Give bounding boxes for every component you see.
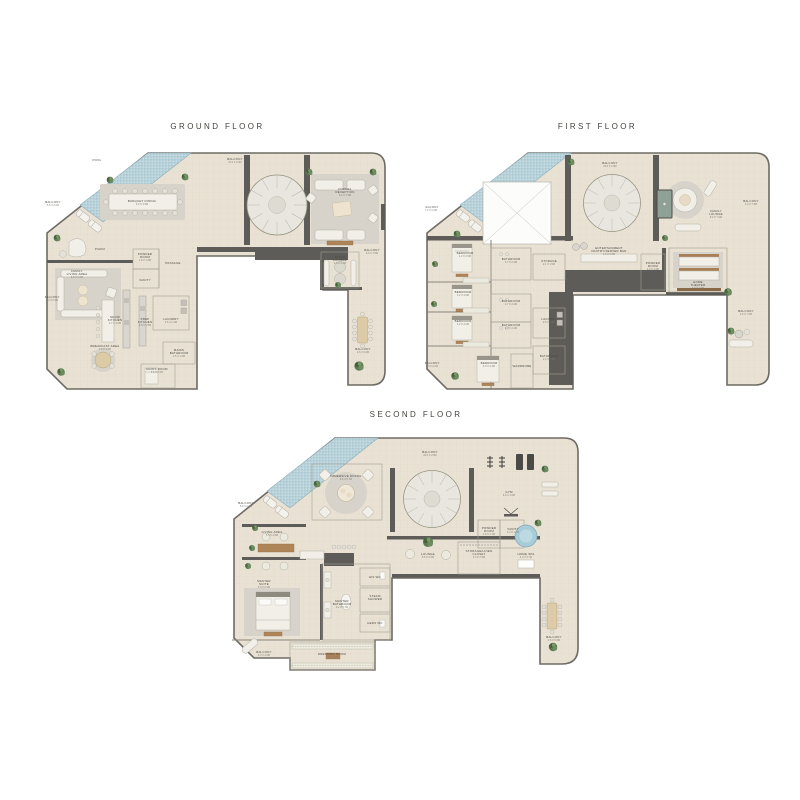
armchair-round	[280, 562, 288, 570]
balcony-bench	[542, 491, 558, 496]
bedroom-2	[452, 285, 472, 312]
plant	[314, 481, 321, 488]
ice-bucket	[573, 244, 580, 251]
console-table	[327, 241, 353, 245]
ground-floor-svg: POOLBALCONY21.0 X 2.0MBALCONY5.5 X 2.0MB…	[45, 150, 390, 390]
sofa	[315, 230, 343, 240]
treadmill	[516, 454, 523, 470]
corridor-wall	[565, 270, 662, 292]
plant	[54, 235, 61, 242]
room-label: VANITY	[139, 278, 151, 282]
wall	[320, 287, 362, 290]
master-bed	[256, 592, 290, 630]
room-label: FAMILYLOUNGE8.2 X 7.0M	[709, 209, 723, 219]
room-label: BALCONY2.6 X 6.0M	[546, 635, 562, 642]
stair-wall	[469, 468, 474, 532]
plant	[432, 261, 438, 267]
room-label: BALCONY6.0 X 2.0M	[425, 361, 440, 368]
plant	[57, 368, 65, 376]
corridor-wall	[549, 292, 573, 385]
wall	[662, 248, 666, 292]
plant	[252, 525, 258, 531]
plant	[568, 159, 575, 166]
sofa-back	[679, 268, 719, 271]
plant	[249, 545, 255, 551]
plant	[423, 537, 433, 547]
wall	[47, 260, 133, 263]
room-label: BALCONY6.0 X 2.0M	[256, 650, 272, 657]
ground-floor-title: GROUND FLOOR	[45, 122, 390, 131]
wall	[242, 557, 306, 560]
plant	[245, 563, 251, 569]
page-root: { "colors": { "floor": "#e9e2d4", "wall"…	[0, 0, 800, 800]
sofa-back	[679, 254, 719, 257]
spiral-staircase	[584, 175, 641, 232]
round-dining-table	[338, 485, 355, 502]
spa-water	[520, 530, 533, 543]
washer	[181, 300, 187, 306]
plant	[549, 643, 557, 651]
plant	[535, 520, 542, 527]
plant	[354, 361, 363, 370]
bar-counter	[300, 551, 324, 559]
ground-floor-plan: POOLBALCONY21.0 X 2.0MBALCONY5.5 X 2.0MB…	[45, 150, 390, 390]
plant	[451, 372, 459, 380]
curved-sofa	[351, 260, 356, 286]
first-floor-svg: BALCONY20.0 X 2.0MBALCONY7.2 X 2.0MFAMIL…	[425, 150, 775, 390]
room-label: BALCONY2.0 X 5.5M	[45, 295, 60, 302]
bed-bench	[264, 632, 282, 636]
second-floor-title: SECOND FLOOR	[240, 410, 592, 419]
bedroom-1	[452, 244, 472, 277]
room-label: BALCONY20.0 X 2.0M	[422, 450, 438, 457]
room-label: LAUNDRY2.6 X 2.2M	[541, 317, 557, 324]
armchair-round	[280, 533, 288, 541]
room-label: STORAGE2.1 X 1.5M	[541, 259, 557, 266]
closet	[463, 308, 489, 313]
closet	[463, 278, 489, 283]
lounge-chair	[442, 551, 451, 560]
room-label: HIS WC	[369, 575, 381, 579]
second-floor-svg: BALCONY20.0 X 2.0MIMMERSIVE DINING6.0 X …	[232, 436, 584, 674]
wall	[320, 564, 323, 640]
room-label: BALCONY3.0 X 7.5M	[743, 199, 759, 206]
plant	[182, 174, 189, 181]
second-floor-plan: BALCONY20.0 X 2.0MIMMERSIVE DINING6.0 X …	[232, 436, 584, 674]
closet	[463, 342, 489, 347]
treadmill	[527, 454, 534, 470]
armchair-round	[262, 562, 270, 570]
wall	[242, 524, 306, 527]
ottoman	[332, 201, 352, 217]
room-label: LOUNGE5.5 X 2.5M	[421, 552, 435, 559]
grand-piano	[69, 239, 86, 258]
sofa	[347, 230, 365, 240]
curved-sofa	[324, 260, 329, 286]
room-label: PASSAGE	[165, 261, 180, 265]
room-label: POOL	[92, 158, 101, 162]
plant	[724, 288, 732, 296]
room-label: HERS WC	[367, 621, 382, 625]
room-label: VANITY2.0 X 1.7M	[507, 527, 519, 534]
sofa	[57, 277, 64, 311]
room-label: WARDROBE	[513, 364, 532, 368]
plant	[335, 282, 341, 288]
wall	[666, 292, 727, 295]
plant	[370, 169, 377, 176]
room-label: PIANO	[95, 247, 106, 251]
theater-sofa	[679, 271, 719, 280]
plant	[728, 328, 735, 335]
plant	[662, 235, 668, 241]
balcony-bench	[542, 482, 558, 487]
pouf	[78, 296, 88, 306]
room-label: CIGARLOUNGE4.0 X 3.6M	[333, 255, 347, 265]
room-label: BALCONY7.2 X 2.0M	[425, 205, 439, 212]
room-label: BALCONY3.0 X 7.5M	[364, 248, 380, 255]
room-label: BALCONY21.0 X 2.0M	[227, 157, 243, 164]
room-label: BALCONY5.5 X 2.0M	[45, 200, 61, 207]
plant	[431, 301, 437, 307]
spa-step	[518, 560, 534, 568]
appliance	[124, 298, 129, 303]
pouf	[78, 285, 88, 295]
stair-wall	[565, 155, 571, 241]
ice-bucket	[581, 243, 588, 250]
first-floor-title: FIRST FLOOR	[425, 122, 770, 131]
round-table	[680, 195, 691, 206]
piano-stool	[60, 251, 67, 258]
washer	[557, 312, 563, 318]
balcony-bench	[729, 340, 753, 347]
plant	[454, 231, 461, 238]
dryer	[557, 320, 563, 326]
plant	[306, 169, 313, 176]
sofa	[61, 310, 107, 317]
room-label: BALCONY5.0 X 2.0M	[238, 501, 254, 508]
room-label: STEAMSHOWER	[368, 594, 383, 601]
first-floor-plan: BALCONY20.0 X 2.0MBALCONY7.2 X 2.0MFAMIL…	[425, 150, 775, 390]
bench	[675, 224, 701, 231]
wall	[320, 252, 324, 290]
plant	[107, 177, 114, 184]
wall	[381, 204, 385, 230]
spiral-staircase	[247, 175, 307, 235]
appliance	[140, 306, 145, 311]
void-double-height	[483, 182, 551, 244]
plant	[542, 466, 549, 473]
room-label: BALCONY2.6 X 7.0M	[738, 309, 754, 316]
dryer	[181, 308, 187, 314]
stair-wall	[390, 468, 395, 532]
breakfast-table	[95, 352, 111, 368]
room-label: MASTERSUITE6.0 X 6.0M	[257, 579, 271, 589]
lounge-chair	[406, 550, 415, 559]
room-label: BALCONY20.0 X 2.0M	[602, 161, 618, 168]
theater-sofa	[679, 257, 719, 266]
corridor-wall	[392, 574, 540, 578]
spiral-staircase	[404, 471, 461, 528]
living-table	[258, 544, 294, 552]
appliance	[124, 320, 129, 325]
tv-console	[504, 514, 518, 517]
balcony-table	[735, 330, 743, 338]
room-label: BALCONY2.6 X 9.0M	[355, 347, 371, 354]
room-label: LAUNDRY2.6 X 2.2M	[163, 317, 179, 324]
